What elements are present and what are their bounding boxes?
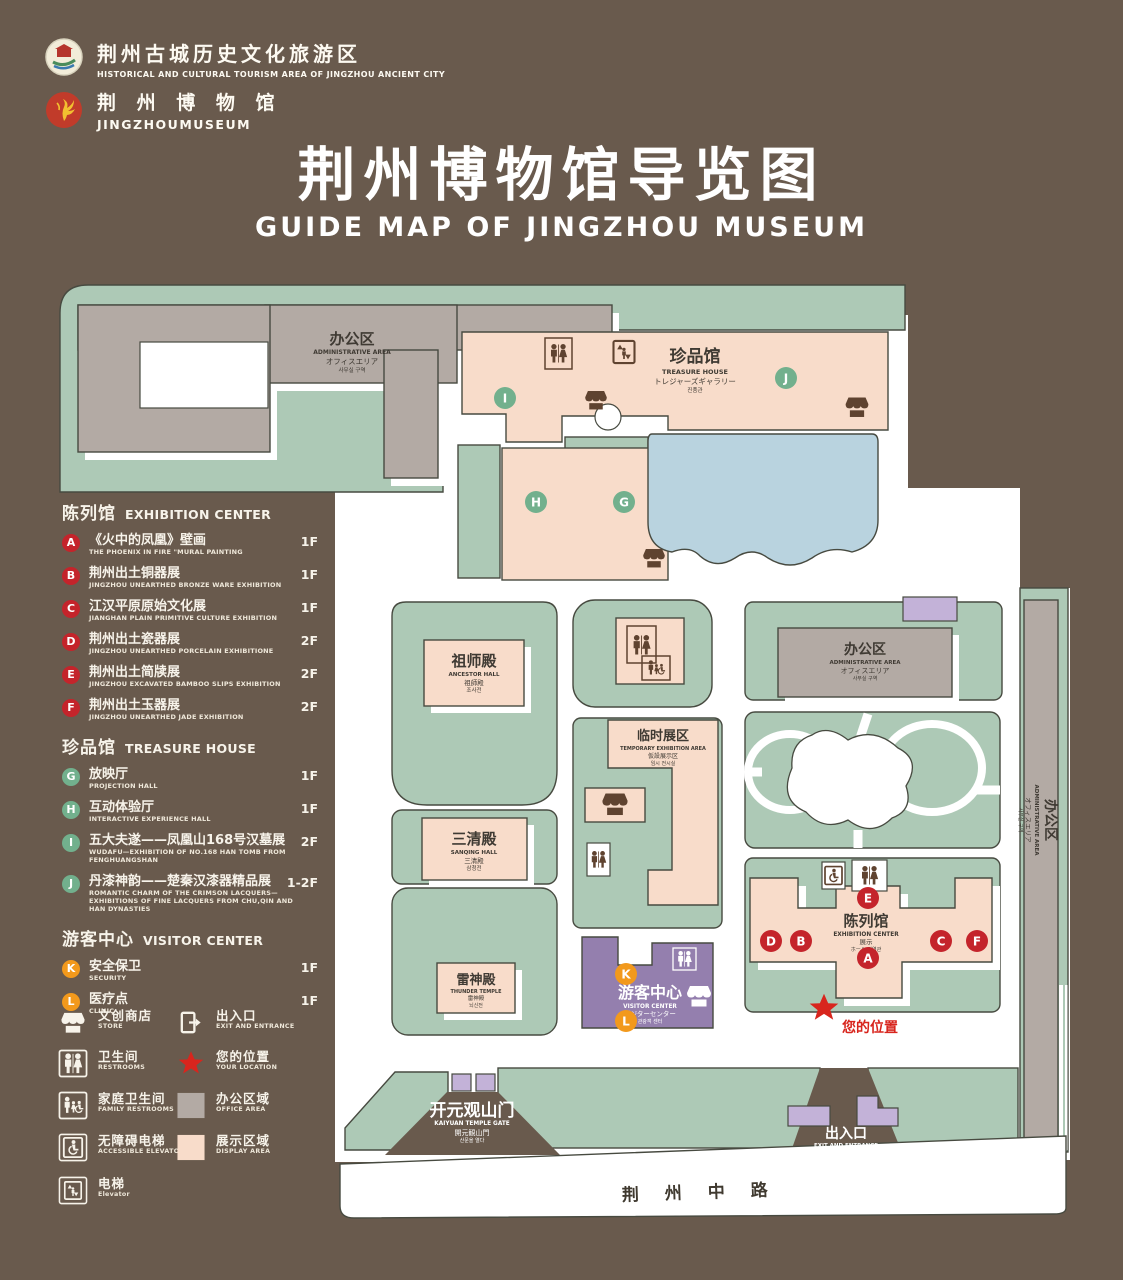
svg-text:출입구: 출입구 <box>839 1156 853 1163</box>
svg-text:TEMPORARY EXHIBITION AREA: TEMPORARY EXHIBITION AREA <box>620 746 706 752</box>
svg-text:조사전: 조사전 <box>466 686 481 694</box>
svg-text:雷神殿: 雷神殿 <box>468 994 485 1002</box>
strip-lane-line <box>1065 985 1068 1150</box>
svg-text:展示: 展示 <box>860 938 874 946</box>
svg-text:E: E <box>864 892 872 906</box>
map-badge-k: K <box>615 963 637 985</box>
svg-text:사무실 구역: 사무실 구역 <box>853 675 878 682</box>
map-badge-e: E <box>857 887 879 909</box>
svg-text:出入口: 出入口 <box>942 579 962 588</box>
svg-text:사무실 구역: 사무실 구역 <box>1017 808 1024 833</box>
svg-text:トレジャーズギャラリー: トレジャーズギャラリー <box>654 376 736 386</box>
strip-lane-line <box>1059 985 1063 1150</box>
svg-text:K: K <box>621 968 631 982</box>
svg-text:SANQING HALL: SANQING HALL <box>451 850 498 856</box>
green-strip-south <box>498 1068 820 1148</box>
svg-text:THUNDER TEMPLE: THUNDER TEMPLE <box>450 989 502 995</box>
svg-text:사무실 구역: 사무실 구역 <box>338 366 365 374</box>
svg-text:진품관: 진품관 <box>687 386 702 394</box>
north-exit-building <box>903 597 957 621</box>
map-badge-a: A <box>857 947 879 969</box>
svg-text:珍品馆: 珍品馆 <box>670 346 721 367</box>
guide-map-poster: 荆州古城历史文化旅游区 HISTORICAL AND CULTURAL TOUR… <box>0 0 1123 1280</box>
svg-text:B: B <box>796 935 805 949</box>
svg-text:G: G <box>619 496 629 510</box>
svg-text:办公区: 办公区 <box>844 641 886 658</box>
map-badge-g: G <box>613 491 635 513</box>
svg-text:EXIT AND ENTRANCE: EXIT AND ENTRANCE <box>814 1143 878 1149</box>
map-badge-d: D <box>760 930 782 952</box>
svg-text:삼청전: 삼청전 <box>466 864 481 872</box>
svg-text:出入口: 出入口 <box>931 554 973 571</box>
treasure-house-building: 珍品馆 TREASURE HOUSE トレジャーズギャラリー 진품관 <box>462 332 888 580</box>
svg-text:仮設展示区: 仮設展示区 <box>648 752 678 760</box>
gate-pillar <box>452 1074 471 1091</box>
map-badge-b: B <box>790 930 812 952</box>
svg-text:산문을 열다: 산문을 열다 <box>460 1137 485 1144</box>
admin-courtyard <box>140 342 268 408</box>
campus-map: 办公区 ADMINISTRATIVE AREA オフィスエリア 사무실 구역 珍… <box>0 0 1123 1280</box>
southeast-exit-building <box>788 1106 830 1126</box>
svg-text:オフィスエリア: オフィスエリア <box>1024 797 1032 843</box>
map-badge-f: F <box>966 930 988 952</box>
svg-text:KAIYUAN TEMPLE GATE: KAIYUAN TEMPLE GATE <box>434 1121 510 1127</box>
map-badge-j: J <box>775 367 797 389</box>
svg-text:ADMINISTRATIVE AREA: ADMINISTRATIVE AREA <box>1033 784 1039 856</box>
map-badge-l: L <box>615 1010 637 1032</box>
svg-text:オフィスエリア: オフィスエリア <box>841 667 890 675</box>
admin-building-east: 办公区 ADMINISTRATIVE AREA オフィスエリア 사무실 구역 <box>778 628 959 704</box>
svg-text:출입구: 출입구 <box>945 588 959 595</box>
svg-text:出入口: 出入口 <box>837 1149 855 1157</box>
green-strip-treasure-west <box>458 445 500 578</box>
svg-text:办公区: 办公区 <box>329 330 374 348</box>
svg-text:A: A <box>863 952 873 966</box>
svg-text:三清殿: 三清殿 <box>451 830 497 848</box>
svg-text:H: H <box>531 496 541 510</box>
svg-text:TREASURE HOUSE: TREASURE HOUSE <box>662 368 728 376</box>
svg-text:出入口: 出入口 <box>825 1125 867 1142</box>
map-badge-i: I <box>494 387 516 409</box>
svg-text:관광객 센터: 관광객 센터 <box>638 1018 663 1025</box>
svg-text:임시 전시실: 임시 전시실 <box>651 760 676 767</box>
svg-text:ADMINISTRATIVE AREA: ADMINISTRATIVE AREA <box>829 660 901 666</box>
visitor-center-building: 游客中心 VISITOR CENTER ビジターセンター 관광객 센터 <box>582 937 721 1036</box>
svg-text:EXIT AND ENTRANCE: EXIT AND ENTRANCE <box>920 573 984 579</box>
map-badge-c: C <box>930 930 952 952</box>
svg-text:J: J <box>783 372 788 386</box>
svg-text:临时展区: 临时展区 <box>637 728 689 744</box>
svg-text:陈列馆: 陈列馆 <box>843 912 888 930</box>
svg-text:开元观山门: 开元观山门 <box>430 1100 515 1121</box>
sanqing-hall-building: 三清殿 SANQING HALL 三清殿 삼청전 <box>422 818 534 887</box>
svg-text:オフィスエリア: オフィスエリア <box>326 357 378 366</box>
map-badge-h: H <box>525 491 547 513</box>
gate-pillar <box>476 1074 495 1091</box>
svg-text:祖师殿: 祖师殿 <box>450 652 497 670</box>
svg-text:I: I <box>503 392 507 406</box>
svg-text:C: C <box>937 935 946 949</box>
lake <box>648 434 878 565</box>
svg-text:雷神殿: 雷神殿 <box>456 972 496 988</box>
svg-text:L: L <box>622 1015 630 1029</box>
svg-text:三清殿: 三清殿 <box>464 856 484 865</box>
svg-text:F: F <box>973 935 981 949</box>
thunder-temple-building: 雷神殿 THUNDER TEMPLE 雷神殿 뇌신전 <box>437 963 522 1020</box>
restroom-pavilion <box>616 618 684 684</box>
svg-text:開元観山門: 開元観山門 <box>455 1128 490 1137</box>
svg-text:游客中心: 游客中心 <box>618 983 682 1002</box>
svg-text:ANCESTOR HALL: ANCESTOR HALL <box>448 672 500 678</box>
your-location-text: 您的位置 <box>842 1019 898 1036</box>
svg-text:祖師殿: 祖師殿 <box>464 678 484 687</box>
ancestor-hall-building: 祖师殿 ANCESTOR HALL 祖師殿 조사전 <box>424 640 531 713</box>
svg-text:ADMINISTRATIVE AREA: ADMINISTRATIVE AREA <box>313 349 391 356</box>
svg-text:뇌신전: 뇌신전 <box>469 1002 483 1009</box>
treasure-house-south-wing <box>502 448 668 580</box>
svg-text:D: D <box>766 935 776 949</box>
svg-text:办公区: 办公区 <box>1042 799 1059 841</box>
